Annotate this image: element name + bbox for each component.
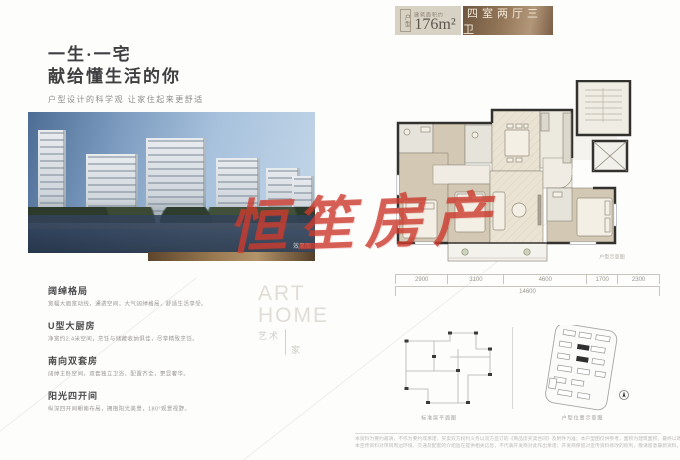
standard-floor-sketch [398, 327, 498, 416]
plan-caption: 户型示意图 [599, 253, 625, 261]
area-badge: 户型 建筑面积约 176m² [395, 6, 461, 35]
water-reflection [28, 215, 315, 253]
feature-desc: 宽幅大面宽动线，通透空间，大气阔绰格局，舒适生活享受。 [48, 299, 223, 307]
feature-item: U型大厨房 净宽约2.4米空间，烹饪与储藏收纳俱佳，尽享精致烹饪。 [48, 319, 238, 343]
rooms-label: 四室两厅三卫 [463, 5, 553, 37]
disclaimer-line-2: 本宣传资料对项目周边环境、交通及配套的介绍旨在提供相关信息，不代表开发商对此作出… [355, 444, 600, 450]
rooms-badge: 四室两厅三卫 [463, 6, 553, 35]
floor-plan-svg [395, 80, 660, 266]
feature-title: 阔绰格局 [48, 284, 238, 297]
disclaimer: 本资料为要约邀请，不作为要约或承诺，买卖双方权利义务以双方签订的《商品房买卖合同… [355, 433, 661, 451]
bronze-strip [148, 252, 315, 261]
site-location-map [528, 325, 638, 416]
art-home-line1: ART [258, 283, 329, 305]
feature-desc: 纵深四开间朝南布局，拥抱阳光美景，180°观景视野。 [48, 404, 223, 412]
disclaimer-line-1: 本资料为要约邀请，不作为要约或承诺，买卖双方权利义务以双方签订的《商品房买卖合同… [355, 437, 600, 443]
feature-item: 阳光四开间 纵深四开间朝南布局，拥抱阳光美景，180°观景视野。 [48, 389, 238, 413]
mini-diagrams: 标准层平面图 户型位置示意图 [390, 325, 660, 425]
feature-item: 阔绰格局 宽幅大面宽动线，通透空间，大气阔绰格局，舒适生活享受。 [48, 284, 238, 308]
title-line-2: 献给懂生活的你 [48, 66, 181, 88]
siteplan-caption: 户型位置示意图 [562, 414, 604, 422]
dim-segment: 2300 [618, 275, 660, 284]
sketch-caption: 标准层平面图 [421, 414, 457, 422]
feature-item: 南向双套房 阔绰主卧空间，双套独立卫浴，配置齐全，更显奢华。 [48, 354, 238, 378]
feature-title: 南向双套房 [48, 354, 238, 367]
dim-segment: 2900 [395, 275, 448, 284]
floor-plan [395, 80, 660, 266]
feature-desc: 净宽约2.4米空间，烹饪与储藏收纳俱佳，尽享精致烹饪。 [48, 334, 223, 342]
feature-title: U型大厨房 [48, 319, 238, 332]
area-tag-box: 户型 [400, 9, 411, 32]
feature-desc: 阔绰主卧空间，双套独立卫浴，配置齐全，更显奢华。 [48, 369, 223, 377]
art-divider [285, 329, 286, 355]
title-line-1: 一生·一宅 [48, 44, 181, 66]
render-photo: 效果图 [28, 112, 315, 253]
art-home-line2: HOME [258, 305, 329, 327]
dimension-bar: 2900 3100 4600 1700 2300 14600 [395, 274, 660, 296]
area-value: 176m² [414, 18, 455, 32]
art-cn-right: 家 [291, 343, 302, 356]
dim-segment: 1700 [587, 275, 618, 284]
photo-caption: 效果图 [293, 241, 311, 250]
diagram-divider [512, 327, 513, 409]
page-title: 一生·一宅 献给懂生活的你 [48, 44, 181, 88]
brochure-page: 户型 建筑面积约 176m² 四室两厅三卫 一生·一宅 献给懂生活的你 户型设计… [0, 0, 680, 460]
dim-segment: 4600 [504, 275, 587, 284]
art-home-logo: ART HOME 艺术 家 [258, 283, 329, 356]
compass-icon [620, 391, 629, 400]
dim-segment: 3100 [448, 275, 504, 284]
feature-title: 阳光四开间 [48, 389, 238, 402]
page-subtitle: 户型设计的科学观 让家住起来更舒适 [48, 94, 204, 105]
area-label: 建筑面积约 [414, 10, 444, 18]
dim-total: 14600 [395, 286, 660, 296]
feature-list: 阔绰格局 宽幅大面宽动线，通透空间，大气阔绰格局，舒适生活享受。 U型大厨房 净… [48, 284, 238, 424]
art-cn-left: 艺术 [258, 329, 280, 342]
